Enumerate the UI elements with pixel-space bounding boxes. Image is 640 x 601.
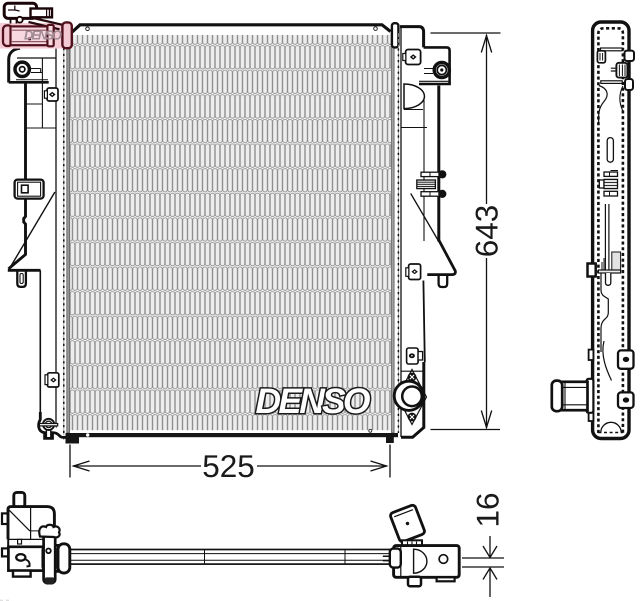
svg-text:DENSO: DENSO xyxy=(256,381,371,421)
svg-text:DENSO: DENSO xyxy=(24,28,62,43)
svg-text:643: 643 xyxy=(469,205,505,258)
svg-text:16: 16 xyxy=(470,492,506,527)
svg-text:525: 525 xyxy=(202,448,255,484)
